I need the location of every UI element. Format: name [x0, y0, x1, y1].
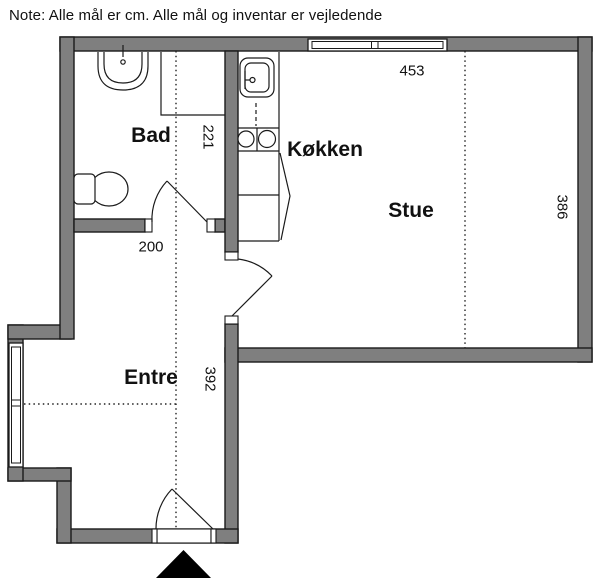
dimension-hall-width: 200 — [138, 239, 163, 256]
floor-plan: Note: Alle mål er cm. Alle mål og invent… — [0, 0, 600, 583]
jamb — [145, 219, 152, 232]
room-label-living-room: Stue — [388, 199, 434, 223]
room-label-kitchen: Køkken — [287, 138, 363, 162]
door-bathroom — [152, 181, 207, 222]
dimension-hallway-depth: 392 — [202, 366, 219, 391]
kitchen-sink — [240, 58, 274, 126]
wall-entre-right — [225, 324, 238, 543]
walls — [8, 37, 592, 543]
jamb — [207, 219, 215, 232]
bathroom-sink — [98, 45, 148, 90]
wall-stue-bottom — [225, 348, 592, 362]
doors — [152, 153, 290, 529]
jamb — [211, 529, 216, 543]
guide-lines — [24, 51, 465, 528]
entrance-arrow — [156, 550, 211, 578]
window-top — [308, 39, 447, 51]
wall-right — [578, 37, 592, 362]
jamb — [152, 529, 157, 543]
cooktop-two-burners — [238, 128, 276, 151]
door-entrance — [156, 489, 213, 529]
wall-left-upper — [60, 37, 74, 339]
room-label-bathroom: Bad — [131, 124, 171, 148]
dimension-bathroom-depth: 221 — [200, 124, 217, 149]
wall-bad-bottom-left — [74, 219, 145, 232]
toilet — [74, 172, 128, 206]
floor-plan-drawing — [0, 0, 600, 583]
dimension-living-room-depth: 386 — [554, 194, 571, 219]
entrance-threshold — [157, 529, 211, 543]
jamb — [225, 252, 238, 260]
shower-enclosure — [161, 52, 225, 115]
wall-bad-bottom-right — [215, 219, 225, 232]
dimension-living-room-width: 453 — [399, 63, 424, 80]
door-kitchen-cabinet — [280, 153, 290, 240]
window-left — [9, 343, 23, 467]
jamb — [225, 316, 238, 324]
room-label-hallway: Entre — [124, 366, 178, 390]
door-living-room — [232, 259, 272, 316]
wall-kitchen — [225, 51, 238, 252]
